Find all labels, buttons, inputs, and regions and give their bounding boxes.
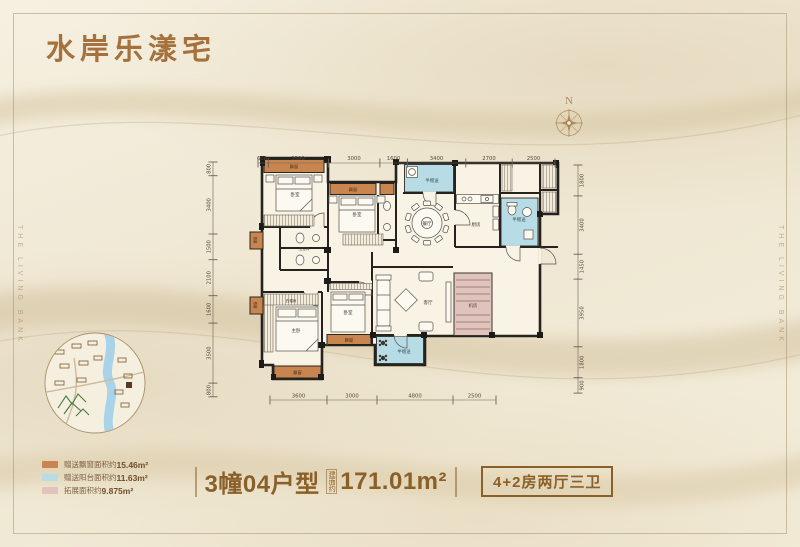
- footer: 3幢04户型 建面约 171.01m² 4+2房两厅三卫: [0, 464, 800, 499]
- dim-bottom-2: 4800: [408, 394, 422, 400]
- river: [107, 332, 111, 434]
- label-dining-room: 餐厅: [423, 220, 432, 227]
- dim-right-5: 900: [580, 380, 586, 391]
- dim-top-3: 1600: [387, 156, 401, 162]
- dim-bottom-3: 2500: [468, 394, 482, 400]
- dim-top-0: 600: [257, 156, 268, 162]
- footer-divider-left: [195, 467, 197, 497]
- dim-left-5: 3500: [207, 346, 213, 360]
- label-half-gift-1: 半赠送: [425, 177, 439, 184]
- layout-spec-badge: 4+2房两厅三卫: [481, 466, 613, 497]
- dim-right-0: 1800: [580, 173, 586, 187]
- label-cloakroom: 衣帽间: [286, 298, 297, 303]
- dim-left-4: 1600: [207, 302, 213, 316]
- dim-left-3: 2100: [207, 270, 213, 284]
- label-bedroom-1: 卧室: [291, 191, 300, 198]
- compass: N: [552, 96, 586, 145]
- label-bay-1: 飘窗: [290, 163, 298, 170]
- dim-bottom-0: 3600: [292, 394, 306, 400]
- label-living-room: 客厅: [424, 299, 433, 306]
- label-bathroom: 卫生间: [299, 246, 310, 251]
- dim-left-2: 1500: [207, 239, 213, 253]
- dim-right-2: 1450: [580, 259, 586, 273]
- label-equipment-room: 机房: [469, 302, 478, 309]
- label-bay-3: 飘窗: [293, 369, 301, 376]
- label-bay-4: 飘窗: [345, 337, 353, 344]
- dim-top-4: 3400: [430, 156, 444, 162]
- page-title: 水岸乐漾宅: [46, 26, 216, 68]
- dim-right-4: 1800: [580, 355, 586, 369]
- side-text-right: THE LIVING BANK: [777, 225, 784, 345]
- footer-divider-right: [455, 467, 457, 497]
- dim-right-1: 3400: [580, 218, 586, 232]
- label-bay-5: 飘窗: [253, 236, 258, 243]
- poster: 水岸乐漾宅 THE LIVING BANK THE LIVING BANK N: [0, 0, 800, 547]
- dim-bottom-1: 3000: [345, 394, 359, 400]
- compass-rose-icon: [552, 106, 586, 140]
- label-half-gift-2: 半赠送: [512, 216, 526, 223]
- dim-top-2: 3000: [347, 156, 361, 162]
- dim-left-1: 3400: [207, 197, 213, 211]
- floor-plan: 飘窗 飘窗 飘窗 飘窗 飘窗 飘窗 半赠送 半赠送 半赠送 卧室 卧室 卧室 主…: [200, 92, 600, 427]
- label-bay-6: 飘窗: [253, 301, 258, 308]
- label-kitchen: 厨房: [472, 221, 481, 228]
- label-bay-2: 飘窗: [349, 186, 357, 193]
- label-half-gift-3: 半赠送: [397, 348, 411, 355]
- dim-left-6: 800: [207, 384, 213, 395]
- label-bedroom-3: 卧室: [344, 309, 353, 316]
- dim-top-5: 2700: [482, 156, 496, 162]
- area-note: 建面约: [326, 469, 338, 494]
- dim-left-0: 800: [207, 163, 213, 174]
- area-value: 171.01m²: [340, 468, 447, 496]
- highlighted-building: [126, 382, 132, 388]
- unit-name: 3幢04户型: [205, 464, 320, 499]
- label-master-bedroom: 主卧: [292, 327, 301, 334]
- site-map: [42, 330, 148, 436]
- dim-top-1: 3500: [291, 156, 305, 162]
- compass-north-label: N: [552, 96, 586, 106]
- side-text-left: THE LIVING BANK: [16, 225, 23, 345]
- dim-top-6: 2500: [527, 156, 541, 162]
- dim-right-3: 3950: [580, 306, 586, 320]
- label-bedroom-2: 卧室: [353, 211, 362, 218]
